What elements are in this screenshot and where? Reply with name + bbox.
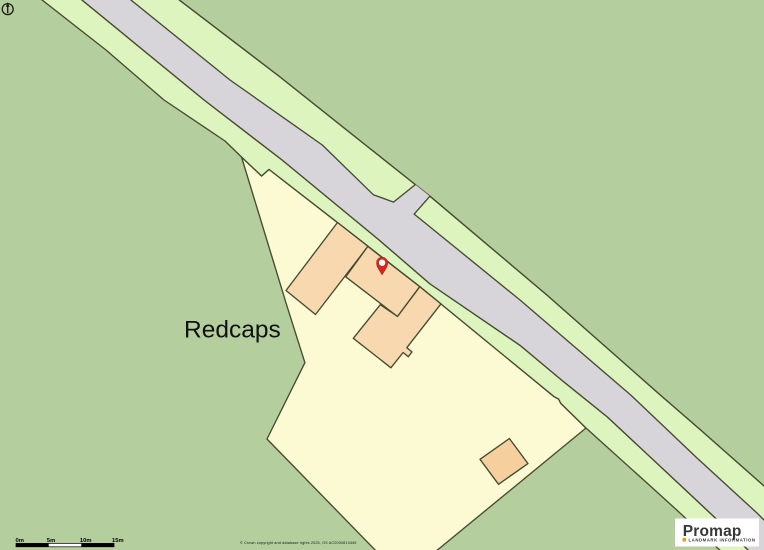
svg-text:15m: 15m — [112, 538, 124, 544]
svg-text:Redcaps: Redcaps — [184, 317, 281, 344]
svg-text:5m: 5m — [47, 538, 55, 544]
svg-text:LANDMARK INFORMATION: LANDMARK INFORMATION — [689, 537, 756, 542]
svg-text:0m: 0m — [16, 538, 24, 544]
svg-text:10m: 10m — [80, 538, 92, 544]
svg-text:© Crown copyright and database: © Crown copyright and database rights 20… — [240, 541, 356, 545]
